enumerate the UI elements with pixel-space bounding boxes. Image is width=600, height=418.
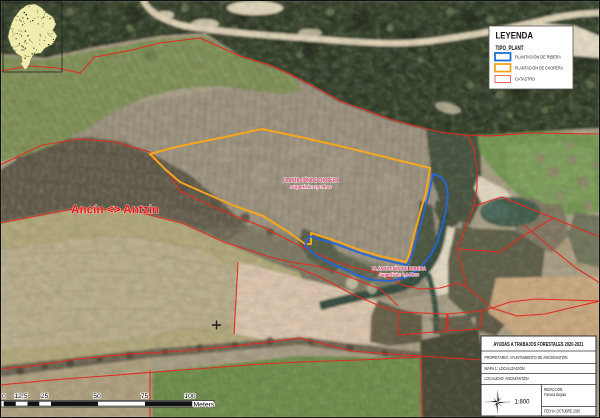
svg-text:FECHA: OCTUBRE 2020: FECHA: OCTUBRE 2020	[544, 409, 580, 414]
svg-text:75: 75	[141, 393, 149, 400]
svg-text:PROPIETARIO: AYUNTAMIENTO DE A: PROPIETARIO: AYUNTAMIENTO DE ANCIN/ANTZI…	[485, 355, 568, 360]
svg-text:Superficie: 2,02 has: Superficie: 2,02 has	[291, 185, 332, 190]
svg-text:PLANTACIÓN DE CHOPERA: PLANTACIÓN DE CHOPERA	[283, 176, 339, 184]
svg-text:PLANTACIÓN DE CHOPERA: PLANTACIÓN DE CHOPERA	[515, 66, 563, 71]
svg-text:PLANTACIÓN DE RIBERA: PLANTACIÓN DE RIBERA	[515, 55, 561, 60]
svg-text:Superficie: 0,14 has: Superficie: 0,14 has	[379, 272, 420, 277]
svg-text:Meters: Meters	[194, 402, 215, 409]
svg-text:TIPO_PLANT: TIPO_PLANT	[496, 46, 524, 52]
svg-text:50: 50	[93, 393, 101, 400]
svg-text:LOCALIDAD: ANCIN/ANTZIN: LOCALIDAD: ANCIN/ANTZIN	[485, 376, 529, 381]
svg-text:100: 100	[184, 393, 196, 400]
svg-text:Foresna Zurgaia: Foresna Zurgaia	[544, 392, 566, 397]
svg-text:CATASTRO: CATASTRO	[515, 77, 535, 82]
svg-text:PLANTACIÓN DE RIBERA: PLANTACIÓN DE RIBERA	[372, 264, 427, 271]
svg-text:12,5: 12,5	[14, 393, 27, 400]
svg-text:MAPA 1: LOCALIZACIÓN: MAPA 1: LOCALIZACIÓN	[485, 366, 525, 371]
svg-text:LEYENDA: LEYENDA	[496, 31, 534, 42]
svg-text:25: 25	[41, 393, 49, 400]
svg-text:Ancín <> Antzin: Ancín <> Antzin	[71, 205, 159, 217]
svg-text:0: 0	[2, 393, 6, 400]
svg-text:1:800: 1:800	[515, 400, 531, 406]
svg-text:AYUDAS A TRABAJOS FORESTALES 2: AYUDAS A TRABAJOS FORESTALES 2020-2021	[494, 342, 584, 348]
